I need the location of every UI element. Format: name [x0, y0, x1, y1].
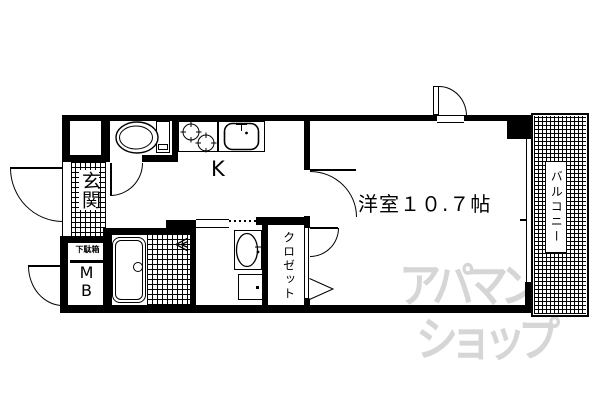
bathtub-drain — [133, 262, 143, 272]
wall — [103, 228, 196, 235]
wall — [166, 220, 196, 228]
dotted-opening-line — [229, 220, 257, 222]
room-door-swing — [310, 171, 357, 217]
window-latch — [520, 219, 527, 221]
washing-machine-pan — [238, 274, 263, 300]
main-room-label: 洋室１０.７帖 — [358, 194, 491, 215]
genkan-step-edge — [105, 162, 106, 236]
wall — [142, 155, 178, 162]
entrance-door-swing — [10, 168, 63, 222]
wall — [62, 305, 533, 313]
wall — [62, 236, 105, 243]
wall — [304, 121, 310, 170]
window-line — [526, 139, 527, 282]
toilet-door-swing — [110, 163, 143, 196]
genkan-label: 玄関 — [79, 170, 99, 210]
wall — [103, 235, 112, 305]
bath-folding-door-icon — [173, 237, 190, 252]
balcony-label: バルコニー — [550, 170, 563, 245]
stove-burners-icon — [179, 121, 219, 153]
wall — [190, 228, 196, 305]
closet-label: クロゼット — [282, 231, 295, 301]
washer-drain-dot — [256, 286, 259, 289]
wall — [60, 236, 68, 313]
shoe-box-label: 下駄箱 — [71, 246, 104, 254]
balcony-label-box: バルコニー — [545, 161, 567, 253]
floor-plan: アパマン ショップ バルコニー — [0, 0, 600, 400]
toilet-icon — [108, 119, 172, 156]
closet-folding-door-icon — [309, 278, 335, 300]
meter-box-label: MB — [77, 264, 96, 300]
wall-pillar — [507, 115, 533, 139]
wall — [304, 298, 310, 313]
washroom-doorway — [196, 219, 229, 228]
wall — [256, 217, 310, 225]
kitchen-label: K — [211, 158, 225, 180]
wall — [62, 155, 110, 162]
mb-door-swing — [28, 266, 63, 306]
washbasin-icon — [233, 228, 265, 272]
kitchen-sink-icon — [219, 120, 265, 153]
top-door-threshold — [437, 115, 464, 123]
top-door-swing — [439, 86, 467, 116]
entrance-threshold — [62, 162, 72, 236]
closet-face-line — [304, 228, 305, 298]
bathtub — [112, 237, 146, 303]
closet-door-swing — [310, 228, 339, 257]
